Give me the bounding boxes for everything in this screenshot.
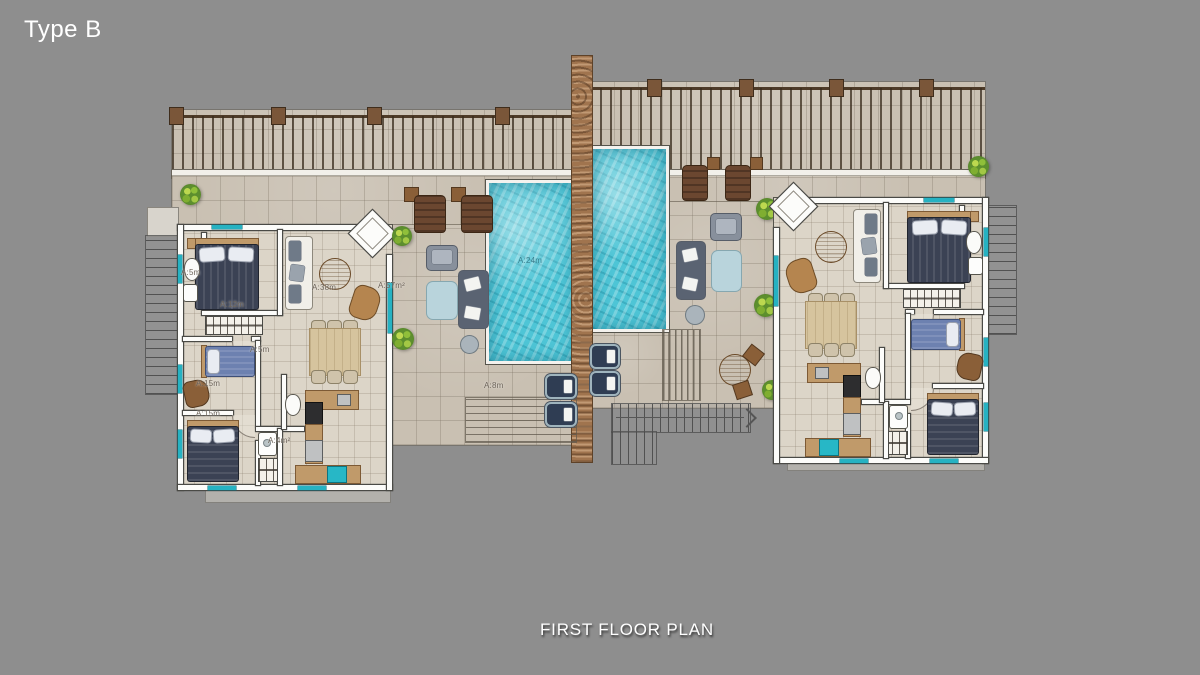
wall: [806, 198, 988, 203]
pillow: [200, 247, 225, 262]
window: [212, 225, 242, 229]
double-bed: [188, 427, 238, 481]
washing-machine: [328, 467, 346, 482]
towel: [564, 408, 572, 421]
window: [298, 486, 326, 490]
sun-lounger: [683, 166, 707, 200]
wall: [880, 348, 884, 402]
kitchen-sink: [338, 395, 350, 405]
pergola-post: [920, 80, 933, 96]
dining-chair: [841, 344, 854, 356]
label-bathroom2-area: A:4m²: [268, 436, 290, 445]
wall: [202, 311, 282, 315]
label-pool-area: A:24m: [518, 256, 542, 265]
label-deck-stairs-area: A:8m: [484, 381, 503, 390]
wardrobe: [206, 317, 262, 334]
single-bed: [206, 347, 254, 376]
towel: [564, 380, 572, 393]
dining-table: [806, 302, 856, 348]
deck-right-lower: [590, 330, 668, 408]
wall: [934, 310, 983, 314]
label-bathroom-area: A:5m: [181, 268, 200, 277]
fridge: [844, 414, 860, 434]
double-bed: [928, 400, 978, 454]
pergola-post: [496, 108, 509, 124]
window: [208, 486, 236, 490]
label-hall-area: A:5m: [250, 345, 269, 354]
stair-landing-left: [148, 208, 178, 236]
label-bedroom2-area: A:15m: [196, 379, 220, 388]
sun-lounger: [726, 166, 750, 200]
side-table: [751, 158, 762, 169]
double-bed: [908, 218, 970, 282]
walkway-left: [206, 490, 390, 502]
outdoor-armchair: [427, 246, 457, 270]
toilet: [286, 395, 300, 415]
exterior-stairs-center: [612, 404, 750, 432]
outdoor-rug: [427, 282, 457, 319]
pergola-post: [740, 80, 753, 96]
window: [984, 403, 988, 431]
pillow: [932, 402, 953, 415]
sofa-cushion: [289, 241, 301, 261]
sofa: [286, 237, 312, 309]
sofa-cushion: [289, 285, 301, 303]
pool-lounger: [592, 373, 618, 394]
window: [774, 256, 778, 306]
single-bed: [912, 320, 960, 349]
closet: [259, 459, 277, 481]
washing-machine: [820, 440, 838, 455]
wall: [933, 384, 983, 388]
wall: [906, 314, 910, 400]
shower: [890, 406, 907, 428]
dining-chair: [328, 371, 341, 383]
pillow: [947, 323, 958, 346]
sofa-cushion: [289, 264, 305, 282]
label-bedroom3-area: A:15m: [196, 409, 220, 418]
plant: [392, 226, 412, 246]
pergola-post: [272, 108, 285, 124]
pool-lounger: [547, 404, 575, 425]
exterior-stairs-right: [986, 206, 1016, 334]
window: [178, 430, 182, 458]
window: [840, 459, 868, 463]
plant: [180, 184, 201, 205]
outdoor-sofa: [677, 242, 705, 299]
pool-lounger: [547, 376, 575, 397]
plant: [392, 328, 414, 350]
wardrobe: [904, 290, 960, 307]
sofa-cushion: [861, 237, 877, 255]
pillow: [214, 429, 235, 442]
wall: [178, 225, 360, 230]
plan-type-label: Type B: [24, 16, 102, 44]
exterior-stairs-center-lower: [612, 432, 656, 464]
pillow: [942, 220, 967, 235]
round-side-table: [686, 306, 704, 324]
window: [930, 459, 958, 463]
window: [984, 338, 988, 366]
stove: [844, 376, 860, 398]
pergola-post: [830, 80, 843, 96]
pillow: [208, 350, 219, 373]
sun-lounger: [415, 196, 445, 232]
armchair-cushion: [716, 219, 736, 234]
closet: [889, 432, 907, 454]
dining-chair: [312, 371, 325, 383]
dining-table: [310, 329, 360, 375]
sink: [184, 285, 197, 301]
pillow: [464, 306, 481, 320]
dining-chair: [825, 344, 838, 356]
pillow: [913, 220, 938, 234]
pool-left: [486, 180, 578, 364]
pool-side-steps: [663, 330, 700, 400]
outdoor-armchair: [711, 214, 741, 240]
kitchen-counter: [806, 439, 870, 456]
pergola-post: [648, 80, 661, 96]
toilet: [866, 368, 880, 388]
pillow: [191, 429, 212, 442]
dining-chair: [344, 371, 357, 383]
sofa: [854, 210, 880, 282]
towel: [607, 350, 615, 363]
outdoor-rug: [712, 251, 741, 291]
window: [984, 228, 988, 256]
outdoor-sofa: [459, 271, 488, 328]
fridge: [306, 441, 322, 461]
side-table: [708, 158, 719, 169]
label-living-room-area: A:38m: [312, 283, 336, 292]
window: [178, 365, 182, 393]
towel: [607, 377, 615, 390]
pergola-post: [368, 108, 381, 124]
sun-lounger: [462, 196, 492, 232]
bed-frame: [960, 319, 964, 350]
wall: [278, 230, 282, 315]
round-coffee-table: [816, 232, 846, 262]
pillow: [229, 247, 254, 261]
pillow: [955, 402, 976, 415]
round-side-table: [461, 336, 478, 353]
sofa-cushion: [865, 214, 877, 234]
pergola-post: [170, 108, 183, 124]
floor-plan-scene: Type B: [0, 0, 1200, 675]
armchair-cushion: [432, 250, 452, 264]
wall: [884, 402, 888, 458]
sofa-cushion: [865, 258, 877, 276]
pool-right: [590, 146, 669, 332]
pool-lounger: [592, 346, 618, 367]
wall: [884, 203, 888, 288]
plant: [968, 156, 989, 177]
window: [924, 198, 954, 202]
exterior-stairs-left: [146, 236, 178, 394]
wall: [884, 284, 964, 288]
pillow: [464, 276, 481, 291]
label-master-bedroom-area: A:12m: [220, 300, 244, 309]
pergola-slats: [172, 116, 577, 176]
pillow: [682, 277, 698, 292]
window: [388, 283, 392, 333]
sink: [969, 258, 982, 274]
toilet: [967, 232, 981, 253]
plan-title: FIRST FLOOR PLAN: [27, 620, 1200, 640]
shower-drain: [896, 413, 902, 419]
stove: [306, 403, 322, 425]
label-terrace-area: A:57m²: [378, 281, 405, 290]
apartment-right: [774, 198, 988, 463]
kitchen-sink: [816, 368, 828, 378]
dining-chair: [809, 344, 822, 356]
apartment-left: [178, 225, 392, 490]
wall: [183, 337, 232, 341]
pillow: [682, 248, 698, 263]
stair-handrail: [616, 417, 744, 418]
